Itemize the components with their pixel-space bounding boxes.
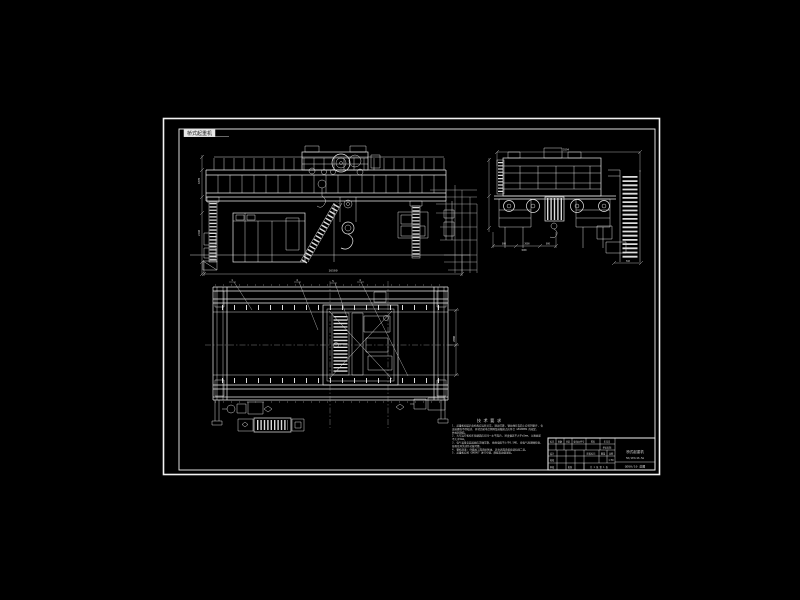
balloon-callouts: 1 4 5 4 xyxy=(229,278,408,376)
dimension-text: 1870 xyxy=(197,177,201,184)
main-hook-sheave-inner xyxy=(345,225,351,231)
note-line: 不大于5mm。 xyxy=(452,437,467,441)
plan-view: 1 4 5 4 2000 xyxy=(205,278,459,432)
tb-label: 签名 xyxy=(591,440,595,444)
dimension-text: 3600 xyxy=(521,249,527,252)
platforms-and-boxes xyxy=(204,201,454,258)
end-trolley-details xyxy=(503,148,601,189)
front-elevation-view: 1870 2240 xyxy=(190,146,477,276)
tb-label: 审核 xyxy=(550,465,555,469)
aux-hook-icon xyxy=(317,188,326,207)
drawing-sheet: 桥式起重机 xyxy=(0,0,800,600)
plan-right-dim: 2000 xyxy=(448,308,459,377)
end-left-dim xyxy=(487,158,491,232)
tb-label: 校核 xyxy=(550,458,555,462)
tb-label: 比例 xyxy=(609,452,614,456)
upper-sheave-pin xyxy=(347,203,350,206)
end-bottom-dims: 800 2000 800 3600 xyxy=(491,232,558,252)
technical-notes: 技 术 要 求 1. 起重机组装后各机构应运转灵活, 制动可靠, 钢丝绳在卷筒上… xyxy=(452,417,544,455)
cab-outline xyxy=(233,213,305,262)
dimension-text: 2000 xyxy=(452,335,456,342)
main-hook-sheave xyxy=(342,222,354,234)
tb-label: 单位名称 xyxy=(603,446,613,450)
dimension-text: 2000 xyxy=(524,243,530,246)
tb-label: 阶段标记 xyxy=(587,452,597,456)
end-hook-sheave xyxy=(551,223,557,229)
hoist-drum-circle xyxy=(332,154,350,172)
end-top-dim xyxy=(495,150,642,172)
plan-pin-b xyxy=(384,316,389,321)
trolley-body xyxy=(302,152,368,170)
balloon-callout: 5 xyxy=(332,279,334,283)
tb-value: 1:50 xyxy=(608,459,614,462)
aux-sheave xyxy=(318,180,326,188)
span-dimension: 16500 xyxy=(202,255,464,276)
front-left-dimensions: 1870 2240 xyxy=(197,155,204,276)
tb-label: 分区 xyxy=(566,440,571,444)
cad-canvas: 桥式起重机 xyxy=(0,0,800,600)
tb-label: 批准 xyxy=(568,465,573,469)
operator-cab xyxy=(233,203,342,262)
end-view: 5594 800 2000 800 3600 xyxy=(487,148,643,266)
balloon-callout: 4 xyxy=(359,278,361,282)
dimension-text: 5594 xyxy=(563,148,570,152)
tb-drawing-name: 桥式起重机 xyxy=(626,449,644,454)
tb-label: 设计 xyxy=(550,452,555,456)
plan-drive-machinery xyxy=(222,398,445,414)
end-trolley-frame xyxy=(503,158,601,196)
tb-drawing-size: 50/10t×16.5m xyxy=(626,456,645,460)
end-bottom-dim-line xyxy=(491,232,558,248)
support-columns xyxy=(207,197,422,262)
note-line: 1. 起重机组装后各机构应运转灵活, 制动可靠, 钢丝绳在卷筒上应排列整齐, 各 xyxy=(452,424,544,428)
plan-walkway-lines xyxy=(213,312,448,375)
main-hook-icon xyxy=(341,234,353,249)
dimension-text: 560 xyxy=(626,260,631,263)
bearing-diamonds xyxy=(264,404,404,412)
span-dim-text: 16500 xyxy=(328,269,337,273)
front-right-dimension-grid xyxy=(430,185,477,273)
span-dim-line xyxy=(202,255,464,276)
left-dim-line xyxy=(200,155,204,276)
callout-leaders xyxy=(229,282,408,376)
trolley-front xyxy=(302,146,380,175)
tb-label: 更改文件号 xyxy=(574,440,586,444)
note-line: 并加润滑脂。 xyxy=(452,430,467,434)
plan-end-wheels xyxy=(215,287,446,400)
sheet-corner-label: 桥式起重机 xyxy=(184,130,229,138)
sheave-a xyxy=(309,168,315,174)
note-line: 5. 起重机应按 GB6067 进行空载、静载及动载试验。 xyxy=(452,451,514,455)
end-access-ladder: 560 xyxy=(608,170,643,265)
corner-label-text: 桥式起重机 xyxy=(187,130,212,137)
note-line: 3. 电气设备安装接线应正确可靠, 绝缘电阻不小于0.5MΩ, 按电气原理图检查… xyxy=(452,441,542,445)
tb-label: 共 1 张 第 1 张 xyxy=(590,465,609,469)
title-block: 标记 处数 分区 更改文件号 签名 年月日 单位名称 设计 校核 审核 批准 阶… xyxy=(548,438,655,470)
cab-details xyxy=(233,213,305,262)
note-line: 各限位开关动作灵敏可靠。 xyxy=(452,444,482,448)
tb-label: 年月日 xyxy=(604,440,611,444)
tb-label: 重量 xyxy=(601,452,606,456)
right-column-cap xyxy=(410,201,422,206)
notes-title: 技 术 要 求 xyxy=(477,417,502,424)
tb-drawing-number: QD50/10 总图 xyxy=(625,464,645,469)
plan-trolley xyxy=(323,292,398,385)
dimension-text: 800 xyxy=(546,243,551,246)
note-line: 2. 大车运行机构车轮踏面应在同一水平面内, 跨度偏差不大于±5mm, 对角线差 xyxy=(452,434,542,438)
resistor-detail xyxy=(238,418,304,432)
note-line: 4. 整机涂漆: 外露加工面涂防锈油, 其余表面涂黄色调和漆二道。 xyxy=(452,447,528,451)
note-line: 连接螺栓不得松动, 开式齿轮啮合侧隙及接触斑点应符合 GB10089 的规定, xyxy=(452,427,538,431)
end-cabinets xyxy=(597,226,626,253)
dimension-text: 800 xyxy=(502,243,507,246)
end-trolley-wheels xyxy=(504,200,610,213)
balloon-callout: 4 xyxy=(296,278,298,282)
rail-stop xyxy=(203,261,217,270)
tb-label: 标记 xyxy=(550,440,555,444)
cab-stair-steps xyxy=(304,203,338,262)
tb-label: 处数 xyxy=(558,440,563,444)
dimension-text: 2240 xyxy=(197,229,201,236)
balloon-callout: 1 xyxy=(231,278,233,282)
hoist-drum-inner xyxy=(336,158,346,168)
